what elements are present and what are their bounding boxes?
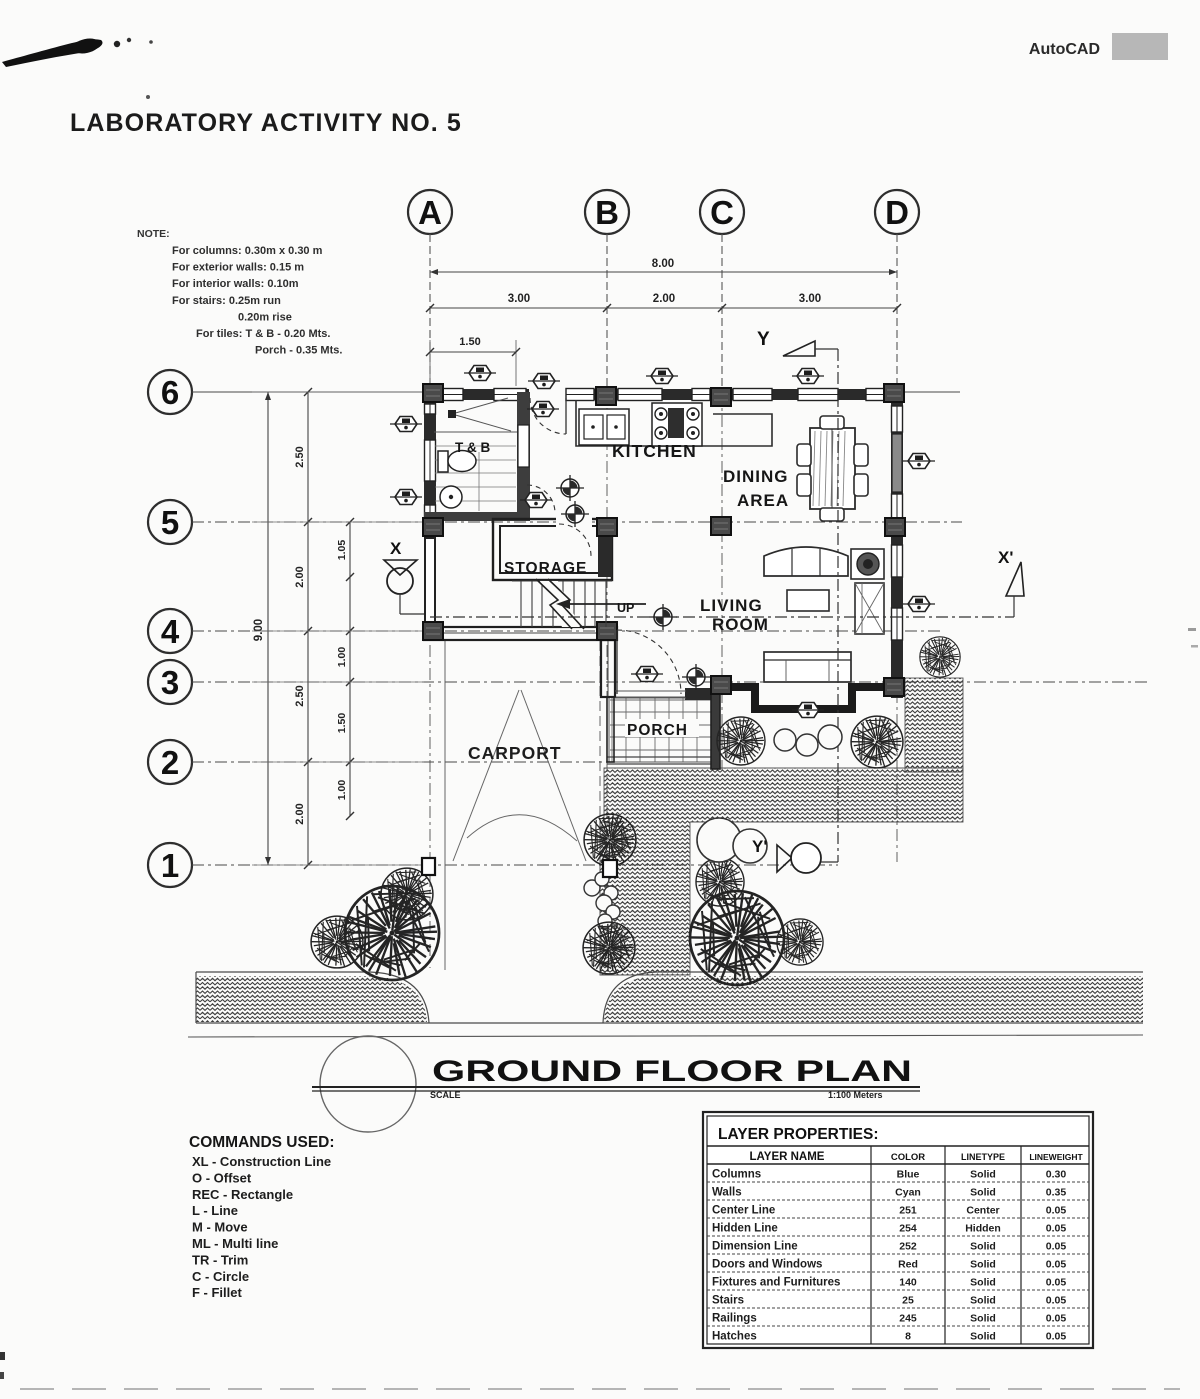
svg-text:Railings: Railings bbox=[712, 1313, 757, 1325]
svg-text:TR - Trim: TR - Trim bbox=[192, 1252, 248, 1267]
svg-text:1:100 Meters: 1:100 Meters bbox=[828, 1090, 883, 1100]
svg-text:3.00: 3.00 bbox=[799, 293, 821, 305]
svg-text:A: A bbox=[418, 194, 442, 231]
svg-text:252: 252 bbox=[899, 1241, 917, 1253]
svg-text:Center Line: Center Line bbox=[712, 1205, 775, 1217]
svg-text:AREA: AREA bbox=[737, 491, 789, 510]
svg-text:2.50: 2.50 bbox=[294, 446, 306, 467]
svg-text:LAYER NAME: LAYER NAME bbox=[750, 1151, 825, 1163]
svg-text:REC - Rectangle: REC - Rectangle bbox=[192, 1187, 293, 1202]
svg-text:Solid: Solid bbox=[970, 1259, 996, 1271]
svg-text:Solid: Solid bbox=[970, 1169, 996, 1181]
svg-text:XL - Construction Line: XL - Construction Line bbox=[192, 1154, 331, 1169]
svg-text:LINETYPE: LINETYPE bbox=[961, 1152, 1005, 1162]
svg-text:For stairs: 0.25m run: For stairs: 0.25m run bbox=[172, 295, 281, 307]
svg-text:5: 5 bbox=[161, 504, 179, 541]
svg-text:L - Line: L - Line bbox=[192, 1203, 238, 1218]
svg-text:1.00: 1.00 bbox=[336, 647, 348, 668]
svg-text:1: 1 bbox=[161, 847, 179, 884]
svg-text:UP: UP bbox=[617, 601, 634, 615]
svg-text:1.00: 1.00 bbox=[336, 780, 348, 801]
svg-text:For interior walls: 0.10m: For interior walls: 0.10m bbox=[172, 278, 299, 290]
svg-text:25: 25 bbox=[902, 1295, 914, 1307]
svg-text:PORCH: PORCH bbox=[627, 722, 688, 739]
svg-text:8: 8 bbox=[905, 1331, 911, 1343]
svg-text:AutoCAD: AutoCAD bbox=[1029, 41, 1100, 58]
svg-text:Fixtures and Furnitures: Fixtures and Furnitures bbox=[712, 1277, 840, 1289]
svg-text:2.50: 2.50 bbox=[294, 685, 306, 706]
svg-text:Walls: Walls bbox=[712, 1187, 742, 1199]
svg-text:Solid: Solid bbox=[970, 1277, 996, 1289]
svg-text:1.50: 1.50 bbox=[459, 336, 480, 348]
svg-text:STORAGE: STORAGE bbox=[504, 560, 587, 577]
svg-text:Dimension Line: Dimension Line bbox=[712, 1241, 798, 1253]
svg-text:T & B: T & B bbox=[455, 440, 490, 455]
svg-text:0.35: 0.35 bbox=[1046, 1187, 1067, 1199]
svg-text:For exterior walls: 0.15 m: For exterior walls: 0.15 m bbox=[172, 262, 304, 274]
svg-text:DINING: DINING bbox=[723, 467, 789, 486]
svg-text:Stairs: Stairs bbox=[712, 1295, 744, 1307]
svg-text:X: X bbox=[390, 539, 402, 558]
svg-text:Blue: Blue bbox=[897, 1169, 920, 1181]
svg-text:Solid: Solid bbox=[970, 1331, 996, 1343]
svg-text:0.05: 0.05 bbox=[1046, 1223, 1067, 1235]
svg-text:LABORATORY ACTIVITY NO. 5: LABORATORY ACTIVITY NO. 5 bbox=[70, 109, 462, 137]
svg-text:245: 245 bbox=[899, 1313, 917, 1325]
svg-text:9.00: 9.00 bbox=[253, 619, 265, 641]
svg-text:C: C bbox=[710, 194, 734, 231]
svg-text:Red: Red bbox=[898, 1259, 918, 1271]
svg-text:O - Offset: O - Offset bbox=[192, 1170, 252, 1185]
svg-text:For columns: 0.30m x 0.30 m: For columns: 0.30m x 0.30 m bbox=[172, 245, 323, 257]
svg-text:0.30: 0.30 bbox=[1046, 1169, 1067, 1181]
svg-text:2.00: 2.00 bbox=[653, 293, 675, 305]
svg-text:Columns: Columns bbox=[712, 1169, 761, 1181]
svg-text:Cyan: Cyan bbox=[895, 1187, 921, 1199]
svg-text:LINEWEIGHT: LINEWEIGHT bbox=[1029, 1152, 1083, 1162]
svg-text:2: 2 bbox=[161, 744, 179, 781]
svg-text:0.05: 0.05 bbox=[1046, 1259, 1067, 1271]
svg-text:LAYER PROPERTIES:: LAYER PROPERTIES: bbox=[718, 1126, 879, 1143]
svg-text:GROUND FLOOR PLAN: GROUND FLOOR PLAN bbox=[432, 1055, 912, 1088]
svg-text:CARPORT: CARPORT bbox=[468, 743, 562, 763]
svg-text:3: 3 bbox=[161, 664, 179, 701]
svg-text:Solid: Solid bbox=[970, 1187, 996, 1199]
svg-text:0.05: 0.05 bbox=[1046, 1295, 1067, 1307]
svg-text:Hatches: Hatches bbox=[712, 1331, 757, 1343]
svg-text:4: 4 bbox=[161, 613, 180, 650]
svg-text:F - Fillet: F - Fillet bbox=[192, 1285, 243, 1300]
svg-text:1.50: 1.50 bbox=[336, 713, 348, 734]
svg-text:254: 254 bbox=[899, 1223, 917, 1235]
svg-text:Hidden Line: Hidden Line bbox=[712, 1223, 778, 1235]
svg-text:0.05: 0.05 bbox=[1046, 1241, 1067, 1253]
svg-text:D: D bbox=[885, 194, 909, 231]
svg-text:SCALE: SCALE bbox=[430, 1090, 461, 1100]
svg-text:Solid: Solid bbox=[970, 1313, 996, 1325]
svg-text:NOTE:: NOTE: bbox=[137, 228, 170, 240]
svg-text:M - Move: M - Move bbox=[192, 1220, 248, 1235]
svg-text:Y': Y' bbox=[752, 837, 767, 856]
svg-text:KITCHEN: KITCHEN bbox=[612, 441, 697, 461]
svg-text:140: 140 bbox=[899, 1277, 917, 1289]
svg-text:Solid: Solid bbox=[970, 1241, 996, 1253]
svg-text:B: B bbox=[595, 194, 619, 231]
svg-text:0.20m rise: 0.20m rise bbox=[238, 311, 292, 323]
svg-text:Doors and Windows: Doors and Windows bbox=[712, 1259, 822, 1271]
svg-text:ML - Multi line: ML - Multi line bbox=[192, 1236, 278, 1251]
svg-text:Solid: Solid bbox=[970, 1295, 996, 1307]
svg-text:0.05: 0.05 bbox=[1046, 1205, 1067, 1217]
svg-text:X': X' bbox=[998, 548, 1013, 567]
svg-text:6: 6 bbox=[161, 374, 179, 411]
svg-text:LIVING: LIVING bbox=[700, 596, 763, 615]
svg-text:3.00: 3.00 bbox=[508, 293, 530, 305]
svg-text:0.05: 0.05 bbox=[1046, 1277, 1067, 1289]
svg-text:0.05: 0.05 bbox=[1046, 1331, 1067, 1343]
svg-text:For tiles: T & B - 0.20 Mts.: For tiles: T & B - 0.20 Mts. bbox=[196, 328, 330, 340]
svg-text:Center: Center bbox=[966, 1205, 999, 1217]
svg-text:Y: Y bbox=[757, 329, 770, 350]
svg-text:COLOR: COLOR bbox=[891, 1152, 925, 1163]
svg-text:C - Circle: C - Circle bbox=[192, 1269, 249, 1284]
svg-text:ROOM: ROOM bbox=[712, 615, 769, 634]
svg-text:Hidden: Hidden bbox=[965, 1223, 1001, 1235]
svg-text:0.05: 0.05 bbox=[1046, 1313, 1067, 1325]
svg-text:1.05: 1.05 bbox=[336, 540, 348, 561]
svg-text:251: 251 bbox=[899, 1205, 917, 1217]
svg-text:8.00: 8.00 bbox=[652, 258, 674, 270]
svg-text:COMMANDS USED:: COMMANDS USED: bbox=[189, 1134, 335, 1151]
svg-text:2.00: 2.00 bbox=[294, 803, 306, 824]
svg-text:Porch - 0.35 Mts.: Porch - 0.35 Mts. bbox=[255, 345, 342, 357]
svg-text:2.00: 2.00 bbox=[294, 566, 306, 587]
